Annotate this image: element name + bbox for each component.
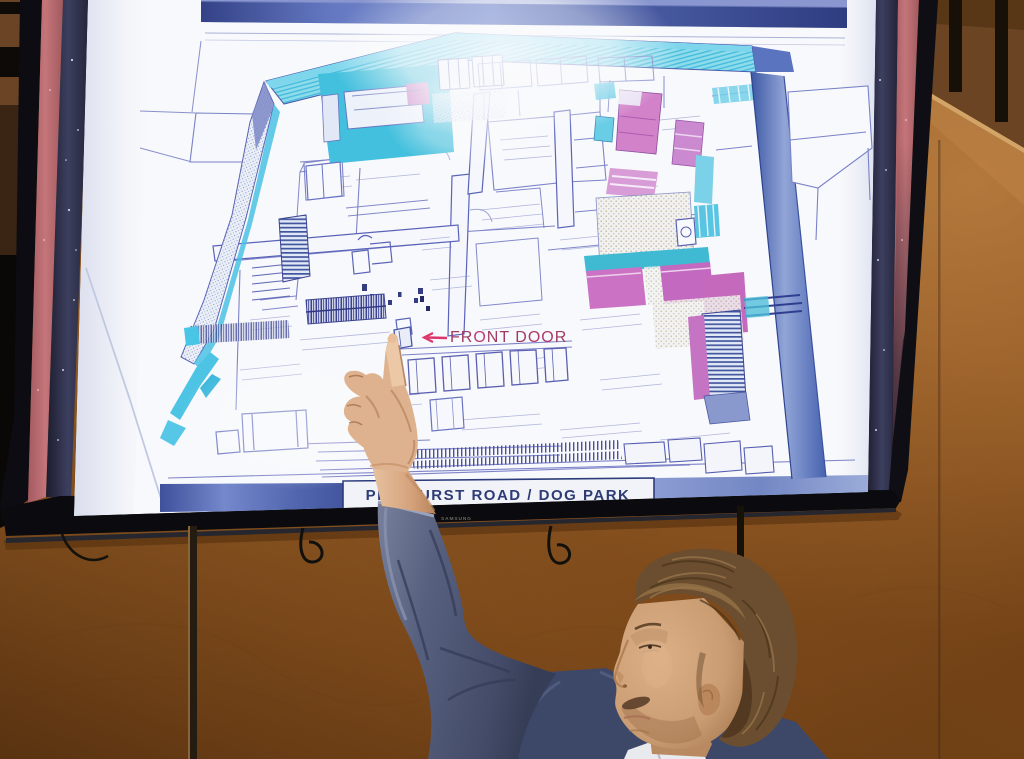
svg-text:SAMSUNG: SAMSUNG (441, 516, 472, 522)
